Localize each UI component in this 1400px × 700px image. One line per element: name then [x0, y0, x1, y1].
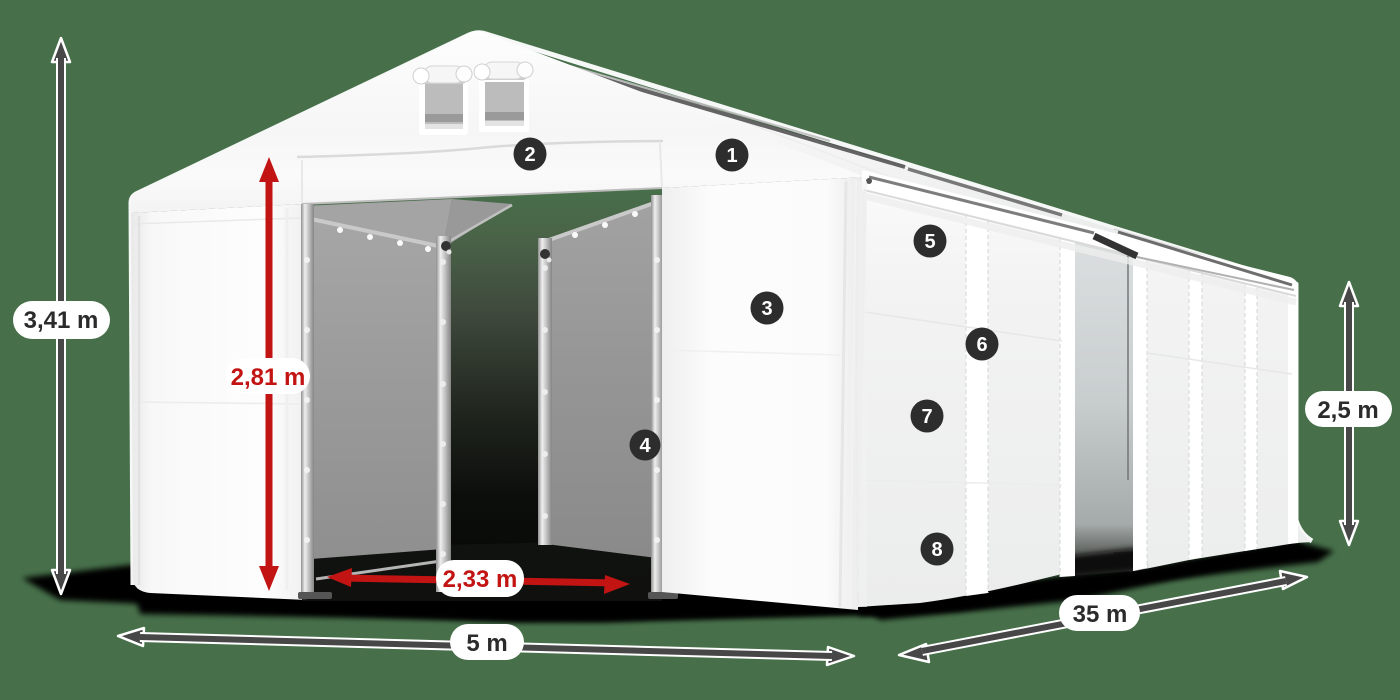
svg-text:8: 8 — [931, 539, 942, 561]
svg-text:2,33 m: 2,33 m — [443, 566, 518, 593]
svg-text:1: 1 — [726, 145, 737, 167]
svg-text:6: 6 — [976, 334, 987, 356]
svg-text:5 m: 5 m — [466, 630, 507, 657]
svg-text:7: 7 — [921, 406, 932, 428]
svg-text:3,41 m: 3,41 m — [24, 307, 99, 334]
svg-text:2,5 m: 2,5 m — [1317, 397, 1378, 424]
svg-text:5: 5 — [924, 231, 935, 253]
svg-text:35 m: 35 m — [1073, 601, 1128, 628]
svg-text:2: 2 — [524, 144, 535, 166]
svg-text:3: 3 — [761, 298, 772, 320]
svg-text:2,81 m: 2,81 m — [231, 364, 306, 391]
svg-text:4: 4 — [639, 435, 651, 457]
